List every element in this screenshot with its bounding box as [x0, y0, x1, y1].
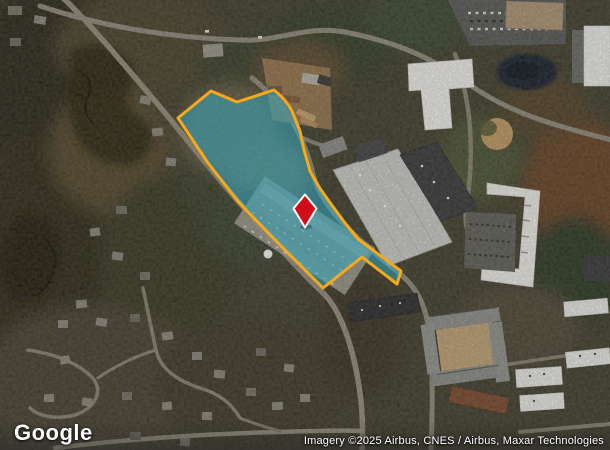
google-logo[interactable]: Google [14, 420, 93, 446]
map-attribution: Imagery ©2025 Airbus, CNES / Airbus, Max… [304, 435, 604, 447]
map-canvas[interactable]: Google Imagery ©2025 Airbus, CNES / Airb… [0, 0, 610, 450]
satellite-imagery [0, 0, 610, 450]
